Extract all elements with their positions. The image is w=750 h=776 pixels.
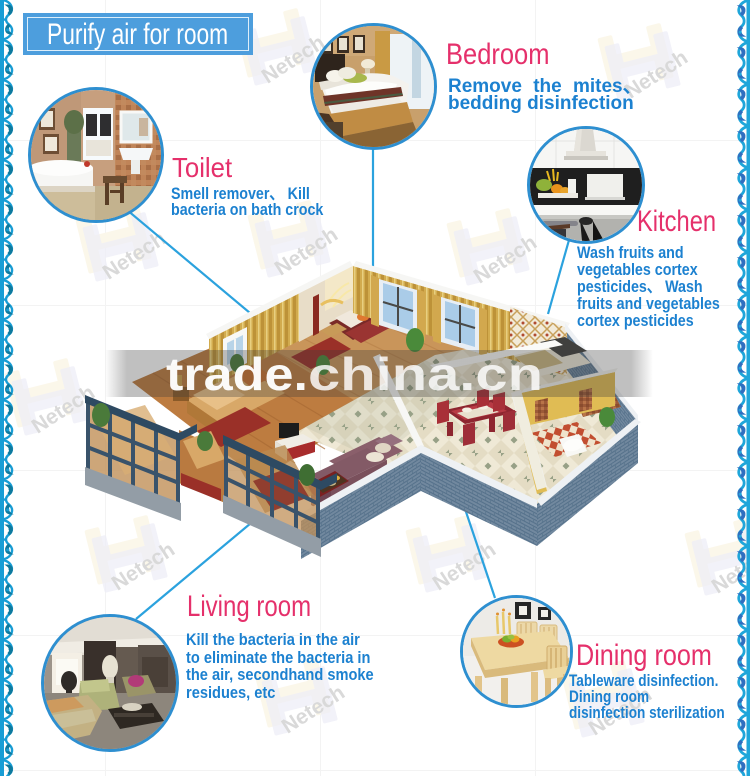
svg-text:china.cn: china.cn [308, 348, 543, 400]
svg-text:trade.: trade. [166, 348, 308, 400]
